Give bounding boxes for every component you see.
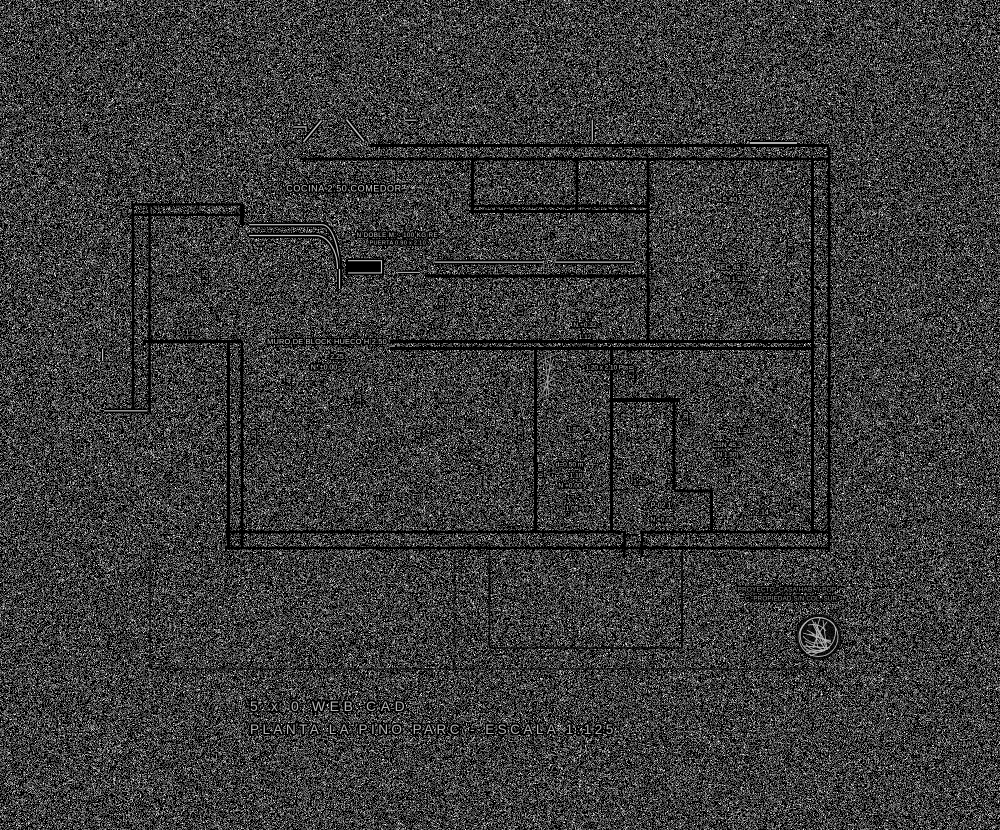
svg-text:N DOBLE M. - 100 KG RE: N DOBLE M. - 100 KG RE — [357, 232, 438, 239]
svg-text:2.30: 2.30 — [683, 411, 690, 424]
svg-text:COCINA 2.50 COMEDOR: COCINA 2.50 COMEDOR — [286, 184, 401, 194]
svg-text:3.20: 3.20 — [251, 430, 258, 443]
svg-text:N. ±0.00: N. ±0.00 — [311, 365, 338, 372]
svg-text:C. PROPIEDAD S/N COL. SUR: C. PROPIEDAD S/N COL. SUR — [745, 596, 838, 603]
svg-text:1.5: 1.5 — [617, 459, 624, 468]
svg-text:REC 45.3: REC 45.3 — [716, 265, 746, 272]
svg-text:1.50: 1.50 — [439, 298, 446, 311]
svg-text:1.20 x 2.10 Pta: 1.20 x 2.10 Pta — [586, 365, 629, 372]
svg-text:1.0: 1.0 — [518, 306, 525, 315]
svg-text:2.10: 2.10 — [356, 394, 363, 407]
svg-text:2.5: 2.5 — [737, 290, 746, 297]
svg-text:MURO DE BLOCK HUECO H 2.50: MURO DE BLOCK HUECO H 2.50 — [267, 337, 387, 346]
svg-text:1.10: 1.10 — [570, 473, 583, 480]
svg-text:2.30: 2.30 — [785, 444, 792, 457]
svg-text:2.40: 2.40 — [416, 429, 423, 442]
svg-text:N +0.00: N +0.00 — [558, 483, 582, 490]
svg-text:2.25: 2.25 — [330, 354, 344, 361]
svg-text:d=0.50 m: d=0.50 m — [556, 462, 584, 469]
svg-text:P-02 1: P-02 1 — [651, 503, 672, 510]
svg-text:CSN 45.3: CSN 45.3 — [712, 442, 742, 449]
svg-text:B-1: B-1 — [581, 313, 592, 320]
svg-text:(N 1.50): (N 1.50) — [715, 452, 738, 459]
svg-text:PROYECTO: CASA HAB. T POP: PROYECTO: CASA HAB. T POP — [738, 587, 837, 594]
svg-text:1.05: 1.05 — [566, 506, 579, 513]
svg-text:1.12: 1.12 — [579, 334, 592, 341]
svg-text:2.3: 2.3 — [724, 461, 733, 468]
svg-text:0.07: 0.07 — [376, 496, 389, 503]
svg-text:0.90: 0.90 — [538, 464, 545, 477]
svg-text:PLANTA LA PINO PARC - ESC: PLANTA LA PINO PARC - ESCALA 1:125 — [250, 722, 617, 737]
svg-text:2.14: 2.14 — [755, 510, 769, 517]
svg-text:5.40: 5.40 — [723, 195, 737, 204]
svg-text:1.50: 1.50 — [738, 428, 751, 435]
svg-text:2.60: 2.60 — [788, 239, 795, 252]
svg-text:1.20: 1.20 — [633, 480, 646, 487]
svg-text:2.10: 2.10 — [629, 365, 636, 378]
svg-text:1.50: 1.50 — [567, 427, 580, 434]
svg-text:PUERTA 0.90 x 2.10: PUERTA 0.90 x 2.10 — [370, 241, 427, 247]
svg-text:2.50: 2.50 — [518, 426, 525, 439]
svg-text:1.20: 1.20 — [185, 330, 199, 337]
svg-text:N.+0.32: N.+0.32 — [573, 322, 597, 329]
svg-text:5 x 0 WEB CAD: 5 x 0 WEB CAD — [250, 698, 409, 714]
svg-text:N +0.05: N +0.05 — [650, 517, 674, 524]
svg-text:2.40: 2.40 — [286, 376, 293, 389]
svg-text:(N 1.50): (N 1.50) — [723, 276, 747, 283]
svg-text:2.25: 2.25 — [203, 270, 210, 284]
